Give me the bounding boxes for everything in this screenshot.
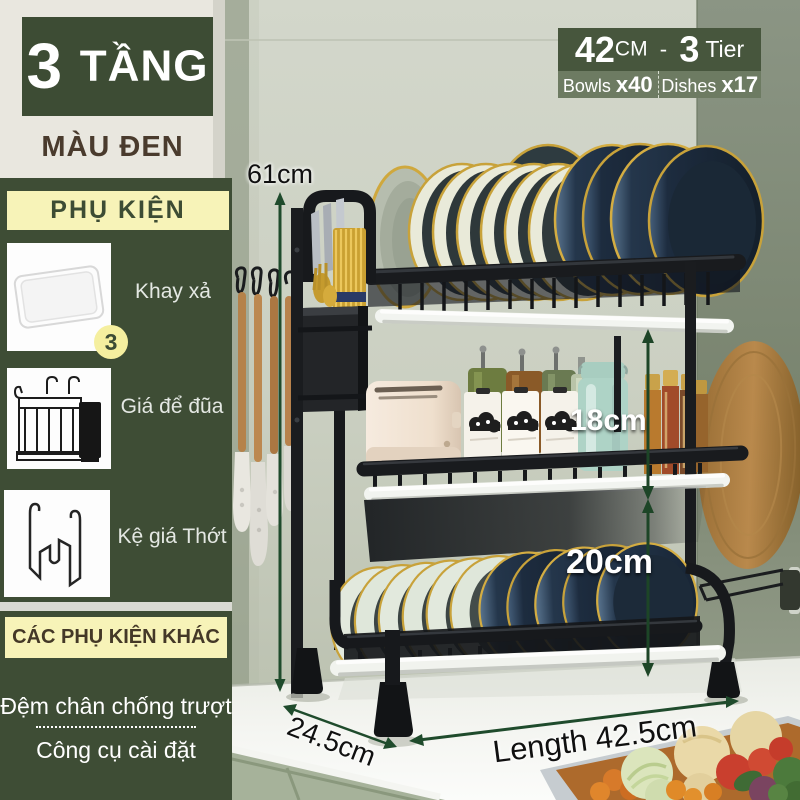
svg-text:18cm: 18cm — [570, 404, 647, 437]
svg-text:20cm: 20cm — [566, 543, 653, 581]
svg-text:61cm: 61cm — [247, 159, 313, 189]
